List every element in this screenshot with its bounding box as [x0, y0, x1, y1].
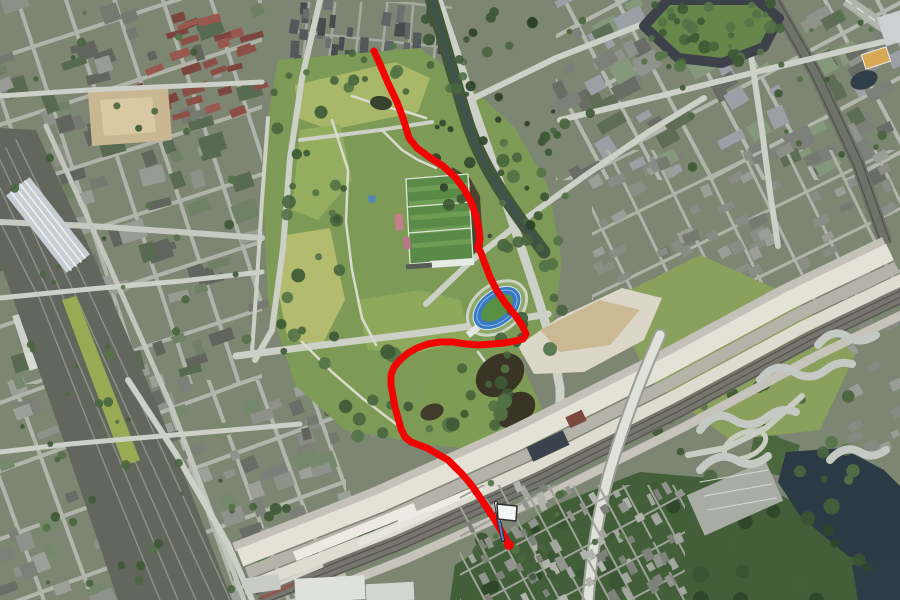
map-background — [0, 0, 900, 600]
map-viewport[interactable] — [0, 0, 900, 600]
satellite-map-image[interactable] — [0, 0, 900, 600]
